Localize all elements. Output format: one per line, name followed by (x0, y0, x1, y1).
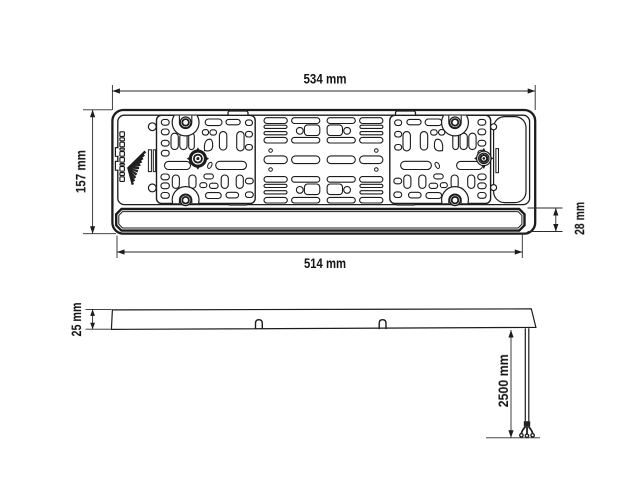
svg-text:2500 mm: 2500 mm (495, 354, 511, 407)
svg-text:157 mm: 157 mm (72, 150, 88, 193)
svg-text:534 mm: 534 mm (304, 71, 347, 87)
svg-text:25 mm: 25 mm (68, 303, 84, 337)
svg-text:514 mm: 514 mm (304, 255, 346, 271)
svg-text:28 mm: 28 mm (571, 202, 587, 235)
